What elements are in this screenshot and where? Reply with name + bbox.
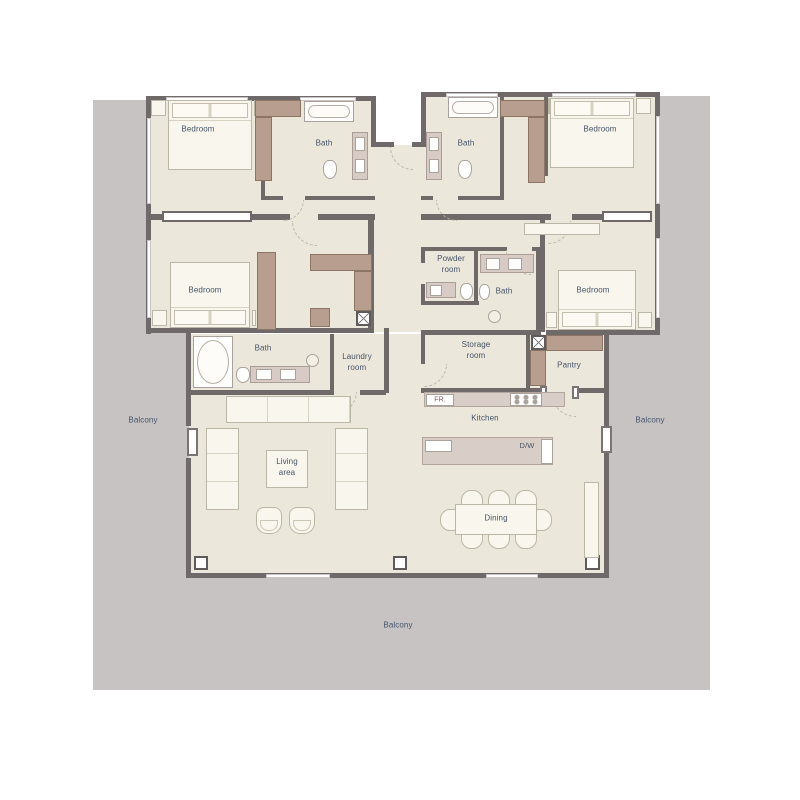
- stove-icon: [510, 393, 542, 406]
- nightstand-icon: [151, 100, 166, 116]
- window: [552, 93, 636, 97]
- bathtub-icon: [193, 336, 233, 388]
- balcony-right-lower: [609, 334, 710, 690]
- wall: [186, 458, 191, 578]
- wall: [384, 328, 389, 393]
- wall: [360, 390, 386, 395]
- sink-icon: [280, 369, 296, 380]
- wall: [572, 214, 604, 220]
- column: [194, 556, 208, 570]
- walkin-closet-icon: [310, 254, 372, 271]
- wall: [577, 388, 604, 393]
- window: [656, 238, 660, 318]
- nightstand-icon: [252, 310, 256, 326]
- wardrobe-icon: [257, 252, 276, 330]
- floor-entry-hall: [374, 145, 423, 332]
- nightstand-icon: [548, 98, 550, 114]
- balcony-left-label: Balcony: [128, 416, 157, 427]
- dresser-icon: [524, 223, 600, 235]
- living-area-label: Living area: [276, 457, 298, 479]
- pantry-shelf-icon: [546, 335, 603, 351]
- powder-room-label: Powder room: [437, 254, 465, 276]
- wall: [604, 452, 609, 578]
- balcony-door: [601, 426, 612, 453]
- walkin-closet-icon: [354, 271, 372, 311]
- sink-icon: [355, 137, 365, 151]
- window: [656, 116, 660, 204]
- toilet-icon: [479, 284, 490, 300]
- pantry-shelf-icon: [530, 350, 546, 386]
- bedroom-mid-left-label: Bedroom: [188, 286, 221, 297]
- pantry-label: Pantry: [557, 361, 581, 372]
- sink-icon: [429, 137, 439, 151]
- kitchen-label: Kitchen: [471, 414, 498, 425]
- wall: [371, 96, 376, 147]
- wardrobe-icon: [528, 117, 545, 183]
- fridge-label: FR.: [434, 395, 446, 404]
- wall: [330, 334, 334, 390]
- sink-icon: [429, 159, 439, 173]
- sofa-icon: [206, 428, 239, 510]
- wall: [536, 247, 540, 335]
- laundry-room-label: Laundry room: [342, 352, 372, 374]
- island-sink-icon: [425, 440, 452, 452]
- window: [147, 118, 151, 204]
- wall: [421, 247, 507, 251]
- wall-opening: [602, 211, 652, 222]
- island-end-cabinet: [541, 439, 553, 464]
- nightstand-icon: [152, 310, 167, 326]
- wall-opening: [162, 211, 252, 222]
- bath-top-left-label: Bath: [316, 139, 333, 150]
- wall: [604, 332, 609, 427]
- walkin-closet-icon: [310, 308, 330, 327]
- wall: [421, 330, 541, 335]
- wall: [186, 390, 334, 395]
- armchair-icon: [289, 507, 315, 534]
- toilet-icon: [323, 160, 337, 179]
- wall: [318, 214, 375, 220]
- floor-plan: Bedroom Bath Bath Bedroom Bedroom Powder…: [0, 0, 800, 800]
- window: [147, 240, 151, 318]
- wall: [474, 247, 478, 305]
- window: [486, 574, 538, 578]
- dishwasher-label: D/W: [520, 441, 535, 451]
- bedroom-top-right-label: Bedroom: [583, 125, 616, 136]
- console-icon: [584, 482, 599, 558]
- wall: [421, 247, 425, 263]
- wardrobe-icon: [255, 117, 272, 181]
- sink-icon: [508, 258, 522, 270]
- wardrobe-icon: [255, 100, 301, 117]
- bath-master-label: Bath: [255, 344, 272, 355]
- wall: [421, 330, 425, 364]
- wall: [421, 301, 479, 305]
- sofa-icon: [335, 428, 368, 510]
- nightstand-icon: [636, 98, 651, 114]
- dining-label: Dining: [484, 514, 507, 525]
- bedroom-mid-right-label: Bedroom: [576, 286, 609, 297]
- wall: [421, 214, 551, 220]
- nightstand-icon: [546, 312, 557, 328]
- storage-room-label: Storage room: [462, 340, 491, 362]
- wall: [421, 196, 433, 200]
- balcony-right-label: Balcony: [635, 416, 664, 427]
- service-shaft-icon: [356, 311, 371, 326]
- bed-icon: [558, 270, 636, 330]
- column: [393, 556, 407, 570]
- wall: [604, 330, 660, 335]
- sink-icon: [486, 258, 500, 270]
- toilet-icon: [236, 367, 250, 383]
- bedroom-top-left-label: Bedroom: [181, 125, 214, 136]
- wall: [458, 196, 504, 200]
- armchair-icon: [256, 507, 282, 534]
- wall: [261, 196, 283, 200]
- bath-top-right-label: Bath: [458, 139, 475, 150]
- sink-icon: [430, 285, 442, 296]
- bath-mid-right-label: Bath: [496, 287, 513, 298]
- toilet-icon: [460, 283, 473, 300]
- wall: [186, 573, 609, 578]
- wardrobe-icon: [500, 100, 545, 117]
- balcony-door: [187, 428, 198, 456]
- window: [266, 574, 330, 578]
- nightstand-icon: [638, 312, 652, 328]
- dining-chair-icon: [440, 509, 456, 531]
- bathtub-icon: [304, 101, 354, 122]
- service-shaft-icon: [531, 335, 546, 350]
- bathtub-icon: [448, 97, 498, 118]
- sink-icon: [256, 369, 272, 380]
- shower-drain-icon: [306, 354, 319, 367]
- sofa-icon: [226, 396, 351, 423]
- wall: [540, 220, 545, 332]
- wall: [186, 332, 191, 426]
- sink-icon: [355, 159, 365, 173]
- toilet-icon: [458, 160, 472, 179]
- wall: [305, 196, 375, 200]
- shower-drain-icon: [488, 310, 501, 323]
- balcony-bottom-label: Balcony: [383, 621, 412, 632]
